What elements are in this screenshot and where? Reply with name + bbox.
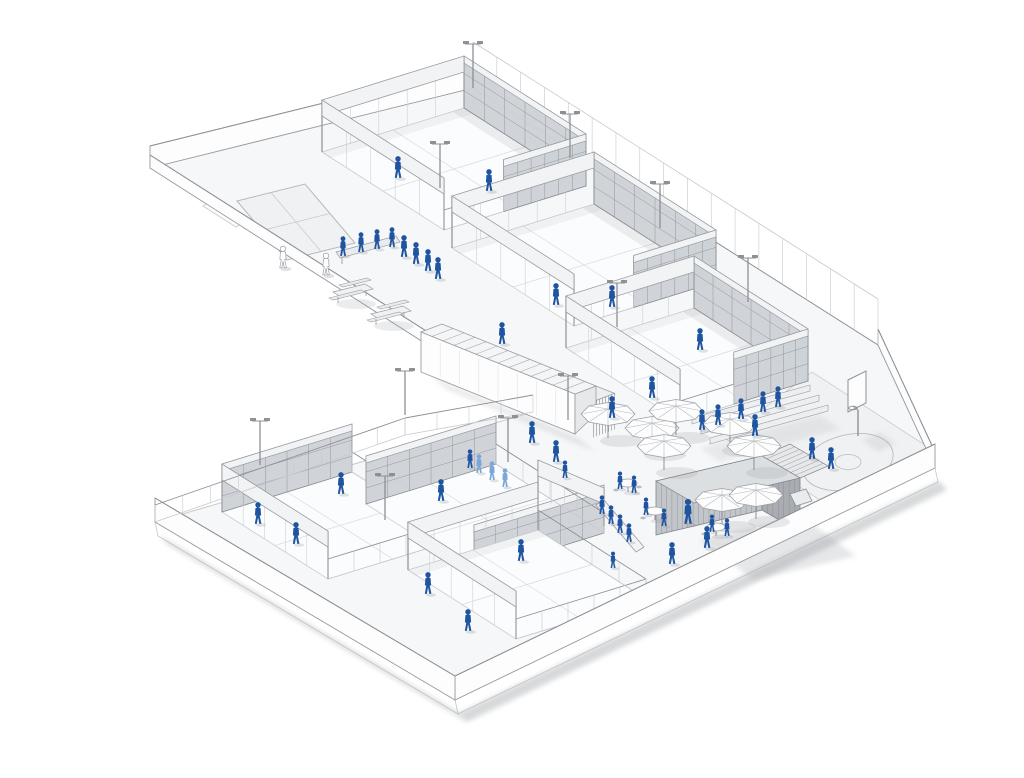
architectural-rendering-page: Axonometric architectural rendering of a… — [0, 0, 1024, 778]
light-pole — [395, 368, 415, 415]
axonometric-site-rendering: Axonometric architectural rendering of a… — [0, 0, 1024, 778]
